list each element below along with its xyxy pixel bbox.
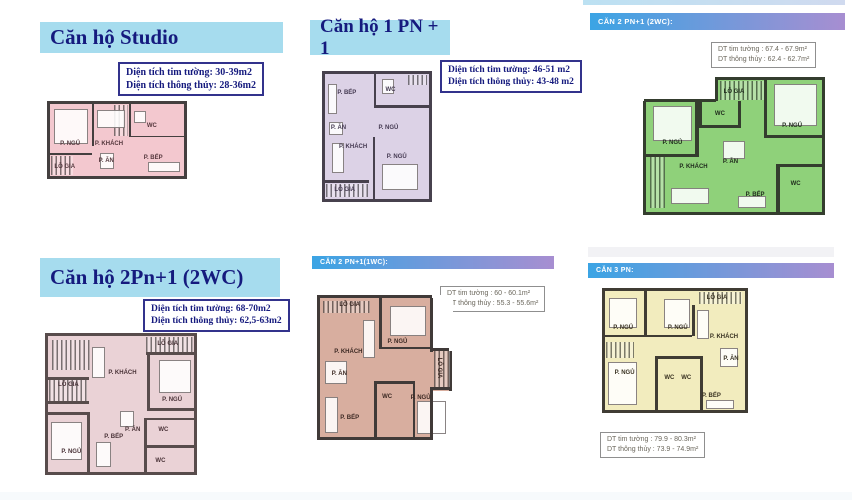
furniture xyxy=(706,400,734,408)
section-title: Căn hộ 1 PN + 1 xyxy=(320,16,450,60)
room-label: P. BẾP xyxy=(702,393,721,399)
section-title: Căn hộ 2Pn+1 (2WC) xyxy=(50,265,243,290)
section-title-bar: Căn hộ 2Pn+1 (2WC) xyxy=(40,258,280,297)
furniture xyxy=(328,84,337,114)
decorative-strip-mid-right xyxy=(588,247,834,257)
room-label: P. NGỦ xyxy=(613,325,633,331)
section-title: CĂN 2 PN+1(1WC): xyxy=(320,259,388,266)
section-title: CĂN 2 PN+1 (2WC): xyxy=(598,17,673,26)
room-label: P. BẾP xyxy=(337,90,356,96)
room-label: P. BẾP xyxy=(746,192,765,198)
room-label: LÔ GIA xyxy=(339,302,360,308)
room-label: P. ĂN xyxy=(332,371,347,377)
room-label: P. BẾP xyxy=(144,155,163,161)
decorative-strip-top-right xyxy=(583,0,845,5)
furniture xyxy=(390,306,426,335)
room-label: WC xyxy=(664,375,674,381)
room-label: P. ĂN xyxy=(723,159,738,165)
room-label: P. KHÁCH xyxy=(95,141,123,147)
area-tim-tuong: Diện tích tim tường: 30-39m2 xyxy=(126,66,256,79)
room-label: P. NGỦ xyxy=(662,140,682,146)
furniture xyxy=(134,111,146,123)
room-label: P. KHÁCH xyxy=(679,164,707,170)
area-info-box: DT tim tường : 67.4 - 67.9m² DT thông th… xyxy=(711,42,816,68)
balcony-hatch xyxy=(606,342,634,357)
area-thong-thuy: Diện tích thông thủy: 62,5-63m2 xyxy=(151,315,282,327)
area-info-box: DT tim tường : 60 - 60.1m² DT thông thủy… xyxy=(440,286,545,312)
room-label: LÔ GIA xyxy=(707,295,728,301)
room-label: LÔ GIA xyxy=(436,357,442,378)
floor-plan-1pn1: P. BẾPWCP. ĂNP. NGỦP. KHÁCHP. NGỦLÔ GIA xyxy=(322,71,432,202)
furniture xyxy=(653,106,692,140)
room-label: WC xyxy=(155,458,165,464)
floor-plan-2pn1-2wc-green: LÔ GIAWCP. NGỦP. NGỦP. KHÁCHP. ĂNP. BẾPW… xyxy=(643,77,825,215)
room-label: P. ĂN xyxy=(331,125,346,131)
room-label: WC xyxy=(382,394,392,400)
room-label: P. NGỦ xyxy=(411,395,431,401)
area-thong-thuy: DT thông thủy : 55.3 - 55.6m² xyxy=(447,299,538,309)
furniture xyxy=(325,397,338,433)
furniture xyxy=(664,299,691,328)
section-title: Căn hộ Studio xyxy=(50,25,178,50)
room-label: WC xyxy=(158,427,168,433)
room-label: P. KHÁCH xyxy=(334,349,362,355)
room-label: P. KHÁCH xyxy=(108,370,136,376)
room-label: LÔ GIA xyxy=(157,341,178,347)
furniture xyxy=(697,310,708,339)
room-label: P. NGỦ xyxy=(162,397,182,403)
area-thong-thuy: Diện tích thông thủy: 43-48 m2 xyxy=(448,76,574,88)
room-label: WC xyxy=(715,111,725,117)
furniture xyxy=(382,164,417,190)
furniture xyxy=(608,362,637,405)
area-info-box: Diện tích tim tường: 30-39m2 Diện tích t… xyxy=(118,62,264,96)
room-label: P. NGỦ xyxy=(387,339,407,345)
floor-plan-3pn: P. NGỦP. NGỦLÔ GIAP. KHÁCHP. ĂNP. NGỦWCW… xyxy=(602,288,748,413)
room-label: WC xyxy=(791,181,801,187)
area-thong-thuy: Diện tích thông thủy: 28-36m2 xyxy=(126,79,256,92)
furniture xyxy=(159,360,191,393)
area-info-box: DT tim tường : 79.9 - 80.3m² DT thông th… xyxy=(600,432,705,458)
furniture xyxy=(96,442,111,466)
furniture xyxy=(671,188,710,204)
room-label: P. ĂN xyxy=(99,158,114,164)
floor-plan-2pn1-1wc: LÔ GIAP. NGỦP. KHÁCHP. ĂNLÔ GIAWCP. NGỦP… xyxy=(317,295,452,440)
balcony-hatch xyxy=(408,75,427,85)
room-label: P. NGỦ xyxy=(60,141,80,147)
room-label: P. NGỦ xyxy=(378,125,398,131)
balcony-hatch xyxy=(52,340,90,370)
area-info-box: Diện tích tim tường: 46-51 m2 Diện tích … xyxy=(440,60,582,93)
area-thong-thuy: DT thông thủy : 73.9 - 74.9m² xyxy=(607,445,698,455)
room-label: P. NGỦ xyxy=(615,370,635,376)
area-tim-tuong: Diện tích tim tường: 46-51 m2 xyxy=(448,64,574,76)
section-title-bar: Căn hộ 1 PN + 1 xyxy=(310,20,450,55)
furniture xyxy=(363,320,376,358)
section-title: CĂN 3 PN: xyxy=(596,267,634,274)
furniture xyxy=(97,110,125,129)
furniture xyxy=(120,411,135,427)
room-label: P. KHÁCH xyxy=(339,144,367,150)
area-info-box: Diện tích tim tường: 68-70m2 Diện tích t… xyxy=(143,299,290,332)
room-label: P. NGỦ xyxy=(782,123,802,129)
room-label: WC xyxy=(147,123,157,129)
furniture xyxy=(54,109,88,144)
section-title-bar: CĂN 2 PN+1 (2WC): xyxy=(590,13,845,30)
room-label: LÔ GIA xyxy=(54,164,75,170)
decorative-strip-bottom xyxy=(0,492,852,500)
balcony-hatch xyxy=(650,157,666,208)
room-label: P. BẾP xyxy=(104,434,123,440)
furniture xyxy=(609,298,637,328)
furniture xyxy=(92,347,105,378)
room-label: P. KHÁCH xyxy=(710,334,738,340)
area-tim-tuong: Diện tích tim tường: 68-70m2 xyxy=(151,303,282,315)
room-label: P. ĂN xyxy=(723,356,738,362)
room-label: WC xyxy=(386,87,396,93)
section-title-bar: CĂN 2 PN+1(1WC): xyxy=(312,256,554,269)
furniture xyxy=(738,196,766,208)
floor-plans-slide: Căn hộ Studio Diện tích tim tường: 30-39… xyxy=(0,0,852,500)
area-tim-tuong: DT tim tường : 60 - 60.1m² xyxy=(447,289,538,299)
furniture xyxy=(148,162,180,172)
furniture xyxy=(723,141,744,159)
room-label: P. BẾP xyxy=(340,415,359,421)
room-label: LÔ GIA xyxy=(334,187,355,193)
room-label: P. NGỦ xyxy=(387,154,407,160)
floor-plan-studio: P. NGỦP. KHÁCHP. ĂNP. BẾPWCLÔ GIA xyxy=(47,101,187,179)
room-label: LÔ GIA xyxy=(58,382,79,388)
section-title-bar: CĂN 3 PN: xyxy=(588,263,834,278)
area-thong-thuy: DT thông thủy : 62.4 - 62.7m² xyxy=(718,55,809,65)
room-label: P. NGỦ xyxy=(61,449,81,455)
floor-plan-2pn1-2wc-pink: LÔ GIAP. KHÁCHLÔ GIAP. NGỦP. ĂNP. BẾPWCP… xyxy=(45,333,197,475)
area-tim-tuong: DT tim tường : 79.9 - 80.3m² xyxy=(607,435,698,445)
room-label: WC xyxy=(681,375,691,381)
section-title-bar: Căn hộ Studio xyxy=(40,22,283,53)
area-tim-tuong: DT tim tường : 67.4 - 67.9m² xyxy=(718,45,809,55)
furniture xyxy=(774,84,816,126)
room-label: LÔ GIA xyxy=(724,89,745,95)
room-label: P. ĂN xyxy=(125,427,140,433)
room-label: P. NGỦ xyxy=(668,325,688,331)
